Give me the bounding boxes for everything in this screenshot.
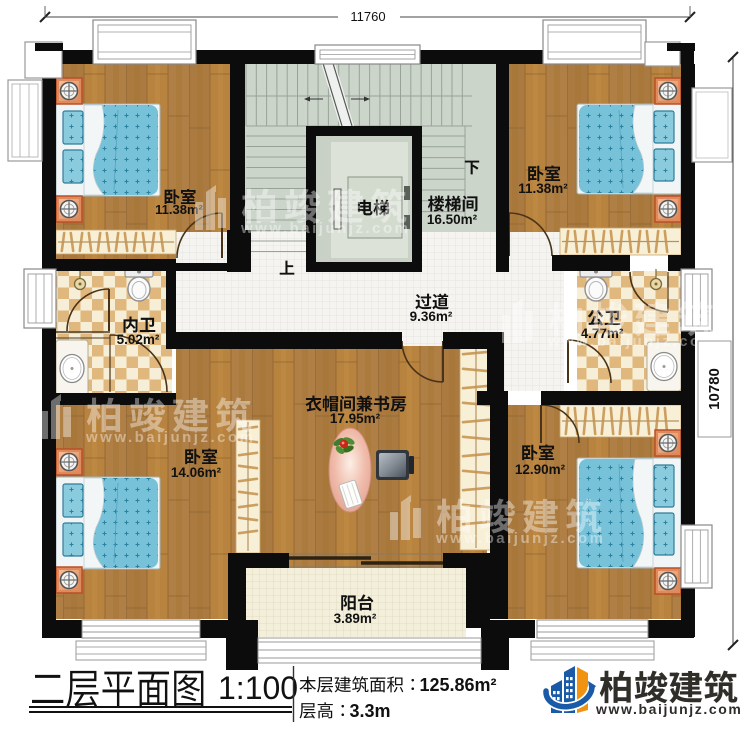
svg-text:5.02m²: 5.02m² xyxy=(117,332,160,347)
svg-text:11760: 11760 xyxy=(350,9,385,24)
svg-text:www.baijunjz.com: www.baijunjz.com xyxy=(240,220,410,237)
svg-text:www.baijunjz.com: www.baijunjz.com xyxy=(435,530,605,547)
svg-text:www.baijunjz.com: www.baijunjz.com xyxy=(595,701,742,717)
svg-text:www.baijunjz.com: www.baijunjz.com xyxy=(85,429,255,446)
svg-text:3.3m: 3.3m xyxy=(350,701,391,721)
svg-text:16.50m²: 16.50m² xyxy=(427,212,478,227)
svg-text:17.95m²: 17.95m² xyxy=(330,411,381,426)
svg-text:3.89m²: 3.89m² xyxy=(334,611,377,626)
svg-text:www.baijunjz.com: www.baijunjz.com xyxy=(547,333,717,350)
svg-text:11.38m²: 11.38m² xyxy=(518,181,568,196)
svg-text:1:100: 1:100 xyxy=(218,670,298,706)
svg-text:12.90m²: 12.90m² xyxy=(515,462,566,477)
svg-text:10780: 10780 xyxy=(706,368,723,410)
svg-text:125.86m²: 125.86m² xyxy=(420,675,497,695)
svg-text:14.06m²: 14.06m² xyxy=(171,465,222,480)
svg-text:9.36m²: 9.36m² xyxy=(410,309,453,324)
